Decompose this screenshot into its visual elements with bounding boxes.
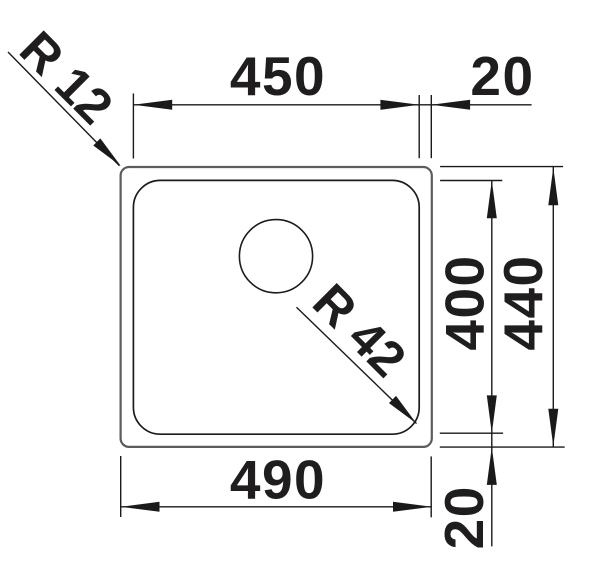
svg-text:440: 440 xyxy=(492,254,554,350)
svg-text:490: 490 xyxy=(230,449,326,511)
svg-text:20: 20 xyxy=(433,485,495,549)
svg-text:400: 400 xyxy=(434,254,496,350)
svg-text:450: 450 xyxy=(230,45,326,107)
svg-text:20: 20 xyxy=(470,45,534,107)
